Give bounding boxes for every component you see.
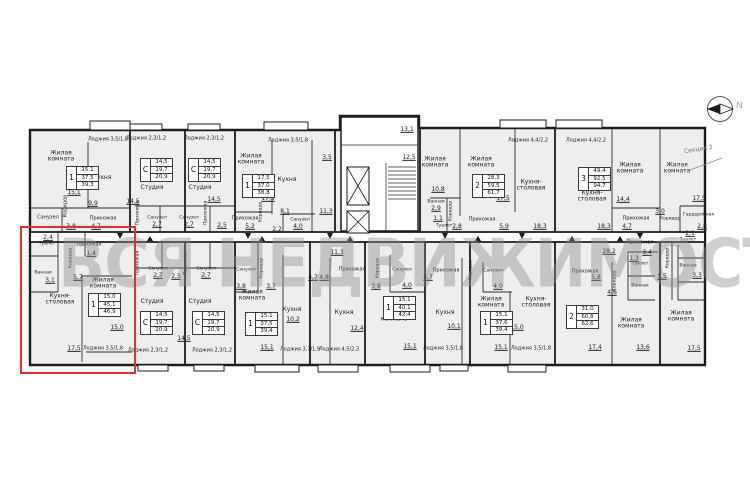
selected-apartment-highlight[interactable] [20,226,136,374]
stair-elevator-core [341,117,418,233]
floor-plan-page: N Секция 2 Жилая комната15,1Кухня9,9Сану… [0,0,750,500]
compass-icon [703,92,737,126]
compass-north-label: N [736,101,743,111]
